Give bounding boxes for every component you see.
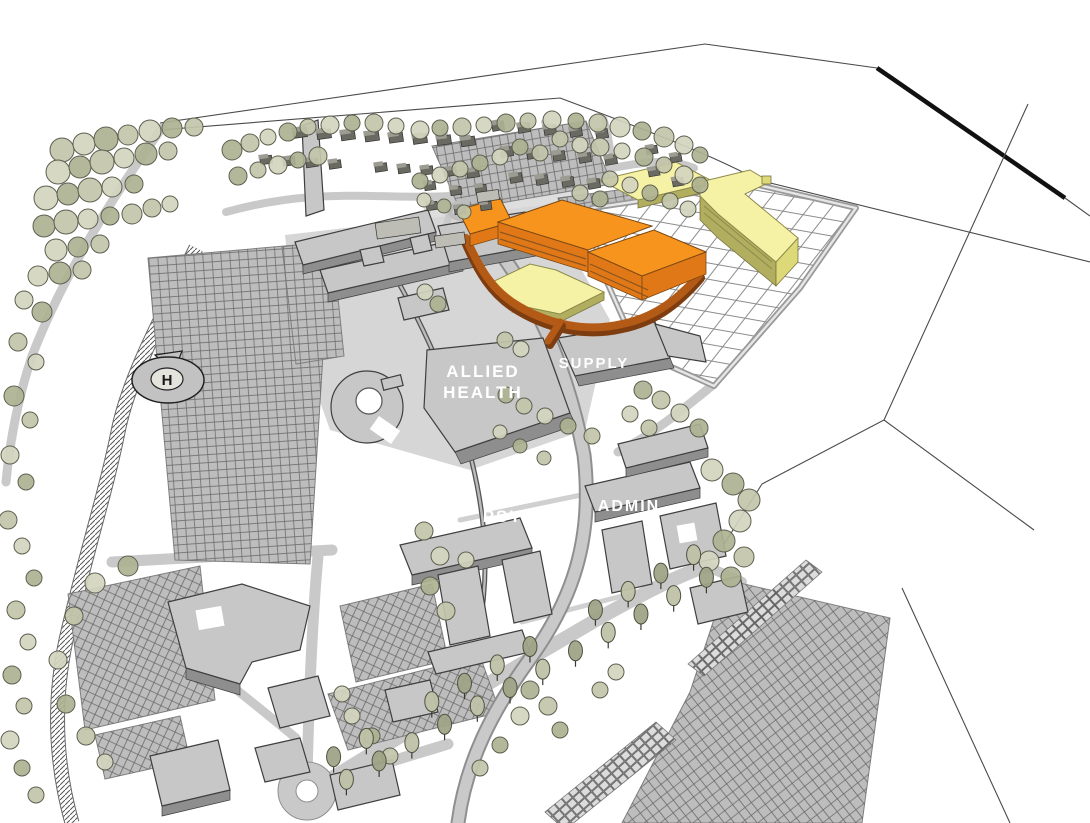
tree [118, 125, 138, 145]
tree [229, 167, 247, 185]
tree [7, 601, 25, 619]
tree [572, 185, 588, 201]
tree [222, 140, 242, 160]
tree [388, 118, 404, 134]
tree [365, 114, 383, 132]
allied-health-label-line2: HEALTH [443, 383, 523, 402]
tree [656, 157, 672, 173]
allee-tree [405, 733, 419, 753]
tree [1, 446, 19, 464]
tree [690, 419, 708, 437]
tree [512, 139, 528, 155]
tree [591, 138, 609, 156]
tree [537, 408, 553, 424]
tree [334, 686, 350, 702]
tree [734, 547, 754, 567]
tree [453, 118, 471, 136]
allied-health-label-line1: ALLIED [446, 362, 519, 381]
tree [437, 602, 455, 620]
allee-tree [523, 637, 537, 657]
tree [713, 530, 735, 552]
tree [125, 175, 143, 193]
tree [430, 296, 446, 312]
tree [552, 722, 568, 738]
tree [458, 552, 474, 568]
tree [162, 118, 182, 138]
tree [250, 162, 266, 178]
tree [4, 386, 24, 406]
tree [143, 199, 161, 217]
tree [91, 235, 109, 253]
allee-tree [327, 747, 341, 767]
tree [9, 333, 27, 351]
tree [46, 160, 70, 184]
tree [662, 193, 678, 209]
tree [139, 120, 161, 142]
tree [622, 406, 638, 422]
tree [260, 129, 276, 145]
tree [729, 510, 751, 532]
tree [77, 727, 95, 745]
tree [32, 302, 52, 322]
tree [614, 143, 630, 159]
allee-tree [654, 563, 668, 583]
tree [589, 114, 607, 132]
tree [552, 131, 568, 147]
tree [635, 148, 653, 166]
tree [57, 695, 75, 713]
tree [417, 193, 431, 207]
tree [513, 341, 529, 357]
helipad-h-label: H [162, 372, 173, 389]
house [373, 161, 387, 173]
allee-tree [372, 751, 386, 771]
tree [568, 113, 584, 129]
tree [20, 634, 36, 650]
house [396, 162, 410, 174]
tree [560, 418, 576, 434]
tree [45, 239, 67, 261]
tree [49, 262, 71, 284]
tree [73, 261, 91, 279]
tree [622, 177, 638, 193]
tree [722, 473, 744, 495]
tree [457, 205, 471, 219]
tree [602, 171, 618, 187]
tree [592, 191, 608, 207]
tree [654, 127, 674, 147]
tree [608, 664, 624, 680]
allee-tree [687, 545, 701, 565]
allee-tree [601, 622, 615, 642]
tree [432, 120, 448, 136]
allee-tree [425, 692, 439, 712]
tree [539, 697, 557, 715]
tree [497, 332, 513, 348]
allee-tree [438, 714, 452, 734]
tree [572, 137, 588, 153]
tree [584, 428, 600, 444]
tree [634, 381, 652, 399]
allee-tree [699, 567, 713, 587]
psych-label: PSYCH [483, 507, 552, 526]
tree [492, 149, 508, 165]
tree [28, 354, 44, 370]
tree [122, 204, 142, 224]
site-plan-rendering: ALLIED HEALTH SUPPLY PSYCH ADMIN H [0, 0, 1090, 823]
tree [437, 199, 451, 213]
tree [415, 522, 433, 540]
tree [114, 148, 134, 168]
tree [513, 439, 527, 453]
tree [14, 538, 30, 554]
tree [34, 186, 58, 210]
tree [652, 391, 670, 409]
tree [50, 138, 74, 162]
tree [97, 754, 113, 770]
tree [65, 607, 83, 625]
tree [432, 167, 448, 183]
house [327, 158, 341, 170]
tree [641, 420, 657, 436]
tree [309, 147, 327, 165]
tree [537, 451, 551, 465]
tree [671, 404, 689, 422]
tree [321, 116, 339, 134]
tree [85, 573, 105, 593]
tree [279, 123, 297, 141]
tree [680, 201, 696, 217]
tree [1, 731, 19, 749]
allee-tree [568, 641, 582, 661]
tree [300, 119, 316, 135]
tree [26, 570, 42, 586]
tree [417, 284, 433, 300]
tree [101, 207, 119, 225]
tree [3, 666, 21, 684]
allee-tree [458, 673, 472, 693]
tree [78, 209, 98, 229]
tree [0, 511, 17, 529]
tree [520, 113, 536, 129]
tree [28, 787, 44, 803]
tree [135, 143, 157, 165]
tree [472, 760, 488, 776]
allee-tree [667, 586, 681, 606]
admin-label: ADMIN [598, 498, 660, 515]
allee-tree [359, 728, 373, 748]
tree [738, 489, 760, 511]
supply-label: SUPPLY [559, 355, 630, 372]
tree [269, 156, 287, 174]
tree [290, 152, 306, 168]
allee-tree [634, 604, 648, 624]
tree [68, 237, 88, 257]
allee-tree [339, 769, 353, 789]
tree [78, 178, 102, 202]
tree [411, 121, 429, 139]
tree [492, 737, 508, 753]
site-boundary-thick-line [877, 68, 1065, 198]
tree [344, 708, 360, 724]
tree [73, 133, 95, 155]
tree [185, 118, 203, 136]
tree [16, 698, 32, 714]
tree [49, 651, 67, 669]
tree [118, 556, 138, 576]
tree [592, 682, 608, 698]
allee-tree [470, 696, 484, 716]
allee-tree [588, 600, 602, 620]
tree [701, 459, 723, 481]
tree [102, 177, 122, 197]
tree [675, 136, 693, 154]
tree [90, 150, 114, 174]
tree [162, 196, 178, 212]
tree [14, 760, 30, 776]
tree [692, 147, 708, 163]
tree [633, 122, 651, 140]
tree [511, 707, 529, 725]
tree [493, 425, 507, 439]
tree [675, 166, 693, 184]
tree [18, 474, 34, 490]
tree [57, 183, 79, 205]
allee-tree [503, 677, 517, 697]
tree [33, 215, 55, 237]
tree [476, 117, 492, 133]
tree [472, 155, 488, 171]
tree [94, 127, 118, 151]
allee-tree [621, 581, 635, 601]
tree [543, 111, 561, 129]
tree [642, 185, 658, 201]
tree [54, 210, 78, 234]
tree [692, 177, 708, 193]
tree [69, 156, 91, 178]
tree [721, 567, 741, 587]
allee-tree [536, 659, 550, 679]
tree [610, 117, 630, 137]
tree [15, 291, 33, 309]
tree [532, 145, 548, 161]
tree [452, 161, 468, 177]
site-plan-canvas: ALLIED HEALTH SUPPLY PSYCH ADMIN H [0, 0, 1090, 823]
tree [28, 266, 48, 286]
allee-tree [490, 655, 504, 675]
tree [241, 134, 259, 152]
tree [159, 142, 177, 160]
round-courtyard-building [331, 371, 403, 444]
tree [344, 115, 360, 131]
tree [421, 577, 439, 595]
tree [497, 114, 515, 132]
tree [22, 412, 38, 428]
tree [521, 681, 539, 699]
tree [412, 173, 428, 189]
tree [431, 547, 449, 565]
